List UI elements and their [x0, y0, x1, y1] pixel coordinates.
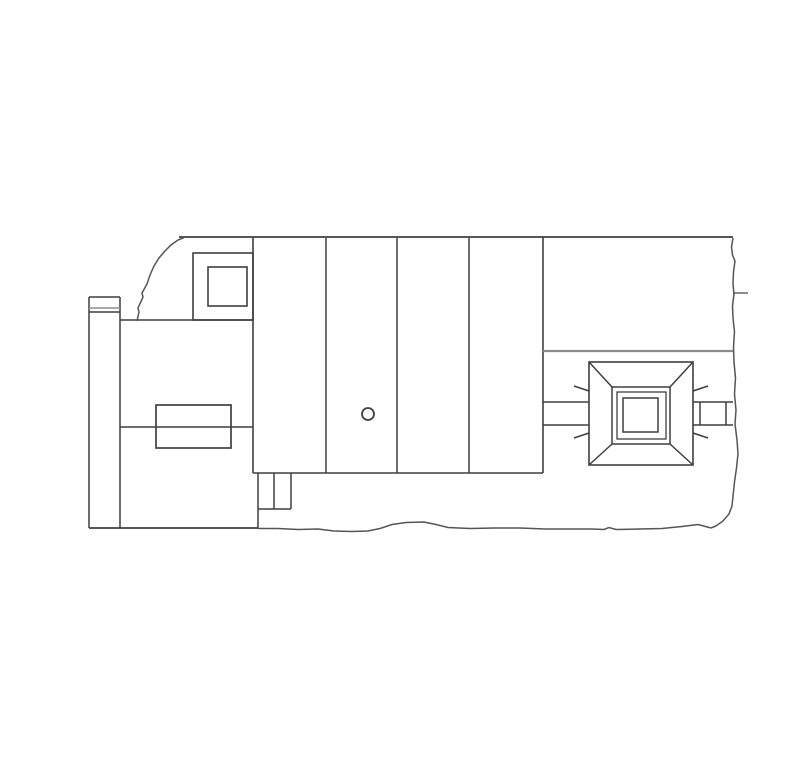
drain-symbol [362, 408, 374, 420]
pyramid-diag-tr [670, 362, 693, 387]
ray-tick-bl [574, 433, 589, 438]
skylight-opening [623, 398, 658, 432]
ray-tick-tr [693, 386, 708, 391]
ray-tick-tl [574, 386, 589, 391]
pyramid-diag-bl [589, 444, 612, 465]
cad-line-drawing [0, 0, 810, 768]
skylight-mid [612, 387, 670, 444]
break-line-right [711, 238, 738, 528]
ray-tick-br [693, 433, 708, 438]
corner-room [193, 253, 253, 320]
break-line-bottom [258, 522, 711, 532]
break-line-left [137, 238, 184, 322]
pyramid-diag-br [670, 444, 693, 465]
pyramid-diag-tl [589, 362, 612, 387]
corner-room-inset [208, 267, 247, 306]
drawing-page [0, 0, 810, 768]
skylight-outer [589, 362, 693, 465]
